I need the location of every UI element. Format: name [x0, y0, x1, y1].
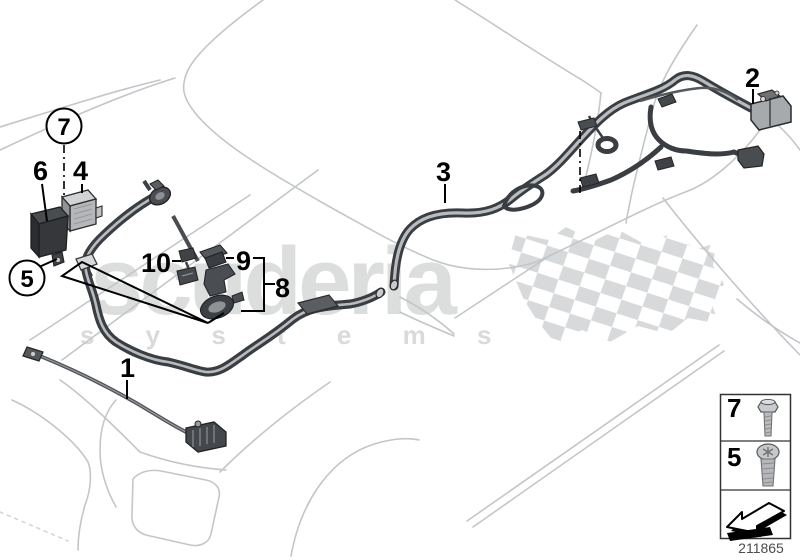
grommet: [598, 139, 616, 152]
branch-connector: [738, 146, 764, 168]
parts-diagram-canvas: scuderia s y s t e m s: [0, 0, 800, 560]
watermark-subtitle-text: s y s t e m s: [80, 320, 513, 350]
callout-1[interactable]: 1: [120, 353, 135, 383]
callout-2[interactable]: 2: [745, 63, 760, 93]
callout-3[interactable]: 3: [436, 157, 451, 187]
callout-5-circled[interactable]: 5: [10, 261, 45, 296]
callout-10[interactable]: 10: [141, 248, 171, 278]
callout-8[interactable]: 8: [275, 273, 290, 303]
diagram-number: 211865: [738, 540, 784, 556]
callout-7-circled[interactable]: 7: [47, 109, 82, 144]
legend-bolt-number: 7: [727, 393, 741, 423]
callout-5-label: 5: [20, 266, 33, 293]
parts-diagram-page: scuderia s y s t e m s: [0, 0, 800, 560]
part-2-battery-terminal: [751, 90, 791, 130]
checkered-flag-watermark: [508, 227, 724, 344]
callout-6[interactable]: 6: [33, 156, 48, 186]
fastener-legend: 7 5: [721, 393, 791, 541]
legend-screw-number: 5: [727, 442, 741, 472]
part-6-control-module: [31, 207, 68, 266]
callout-4[interactable]: 4: [73, 156, 88, 186]
callout-9[interactable]: 9: [236, 246, 251, 276]
callout-7-label: 7: [57, 114, 70, 141]
cable-end-connector: [186, 422, 226, 452]
